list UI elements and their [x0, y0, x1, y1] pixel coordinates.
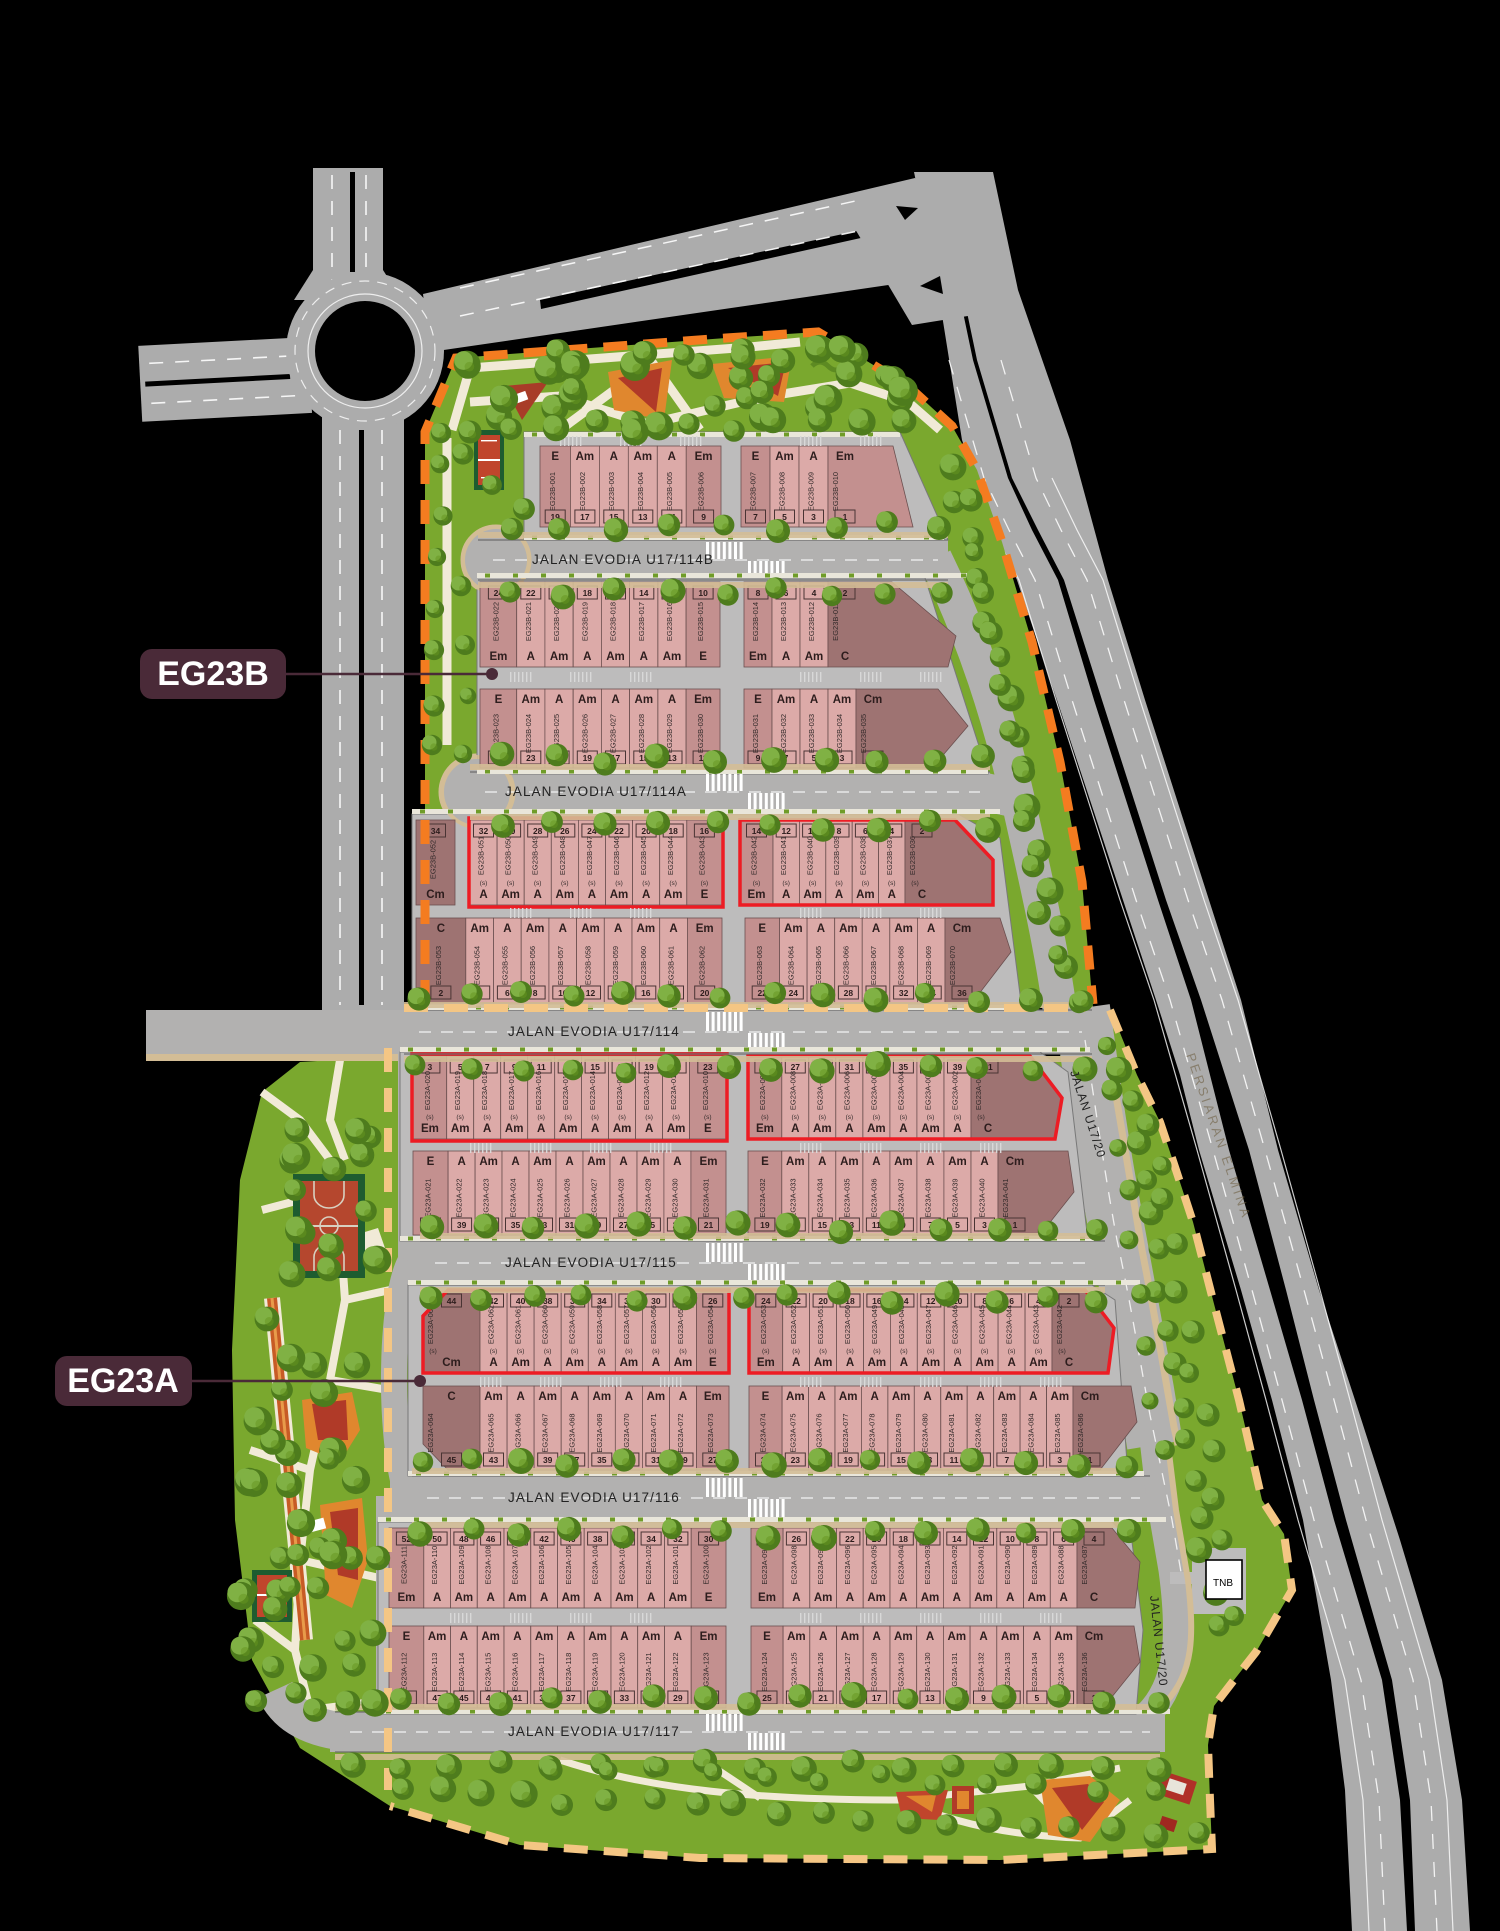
- svg-text:(s): (s): [480, 880, 488, 887]
- svg-text:(s): (s): [761, 1114, 769, 1121]
- svg-text:Em: Em: [757, 1357, 775, 1369]
- svg-text:EG23A-085: EG23A-085: [1053, 1413, 1062, 1452]
- svg-text:EG23A-101: EG23A-101: [671, 1545, 680, 1584]
- svg-text:EG23A-051: EG23A-051: [816, 1305, 825, 1344]
- svg-text:Am: Am: [501, 889, 520, 901]
- svg-text:A: A: [870, 1391, 878, 1403]
- svg-text:31: 31: [845, 1062, 855, 1072]
- svg-text:A: A: [792, 1357, 800, 1369]
- svg-text:EG23A-004: EG23A-004: [896, 1071, 905, 1110]
- svg-text:Am: Am: [642, 1631, 661, 1643]
- svg-text:40: 40: [516, 1296, 526, 1306]
- svg-text:EG23B-031: EG23B-031: [751, 714, 760, 753]
- svg-text:16: 16: [641, 988, 651, 998]
- svg-text:C: C: [1065, 1357, 1073, 1369]
- svg-text:EG23A-012: EG23A-012: [642, 1071, 651, 1110]
- svg-text:EG23A-076: EG23A-076: [815, 1413, 824, 1452]
- svg-text:(s): (s): [792, 1348, 800, 1355]
- svg-text:(s): (s): [618, 1114, 626, 1121]
- svg-text:A: A: [782, 889, 790, 901]
- svg-text:Am: Am: [470, 923, 489, 935]
- svg-text:Am: Am: [839, 923, 858, 935]
- svg-text:EG23A-046: EG23A-046: [951, 1305, 960, 1344]
- svg-text:Am: Am: [581, 923, 600, 935]
- svg-text:Am: Am: [839, 1391, 858, 1403]
- svg-text:A: A: [818, 1156, 826, 1168]
- svg-text:A: A: [900, 1357, 908, 1369]
- svg-text:A: A: [534, 889, 542, 901]
- svg-text:A: A: [540, 1592, 548, 1604]
- svg-text:A: A: [614, 923, 622, 935]
- svg-text:A: A: [899, 1592, 907, 1604]
- svg-text:EG23A-017: EG23A-017: [507, 1071, 516, 1110]
- svg-text:42: 42: [539, 1534, 549, 1544]
- svg-text:JALAN EVODIA U17/115: JALAN EVODIA U17/115: [505, 1255, 677, 1270]
- svg-text:EG23A-050: EG23A-050: [843, 1305, 852, 1344]
- svg-text:EG23A-066: EG23A-066: [514, 1413, 523, 1452]
- svg-text:(s): (s): [762, 1348, 770, 1355]
- svg-text:EG23A-065: EG23A-065: [487, 1413, 496, 1452]
- svg-text:Am: Am: [1054, 1631, 1073, 1643]
- svg-text:A: A: [782, 651, 790, 663]
- svg-text:C: C: [984, 1123, 992, 1135]
- svg-text:(s): (s): [1008, 1348, 1016, 1355]
- svg-text:EG23B-055: EG23B-055: [500, 946, 509, 985]
- svg-text:5: 5: [955, 1220, 960, 1230]
- svg-text:EG23A-103: EG23A-103: [617, 1545, 626, 1584]
- svg-text:(s): (s): [591, 1114, 599, 1121]
- svg-text:Am: Am: [1051, 1391, 1070, 1403]
- svg-text:EG23A-112: EG23A-112: [399, 1653, 408, 1692]
- svg-text:20: 20: [700, 988, 710, 998]
- svg-text:Am: Am: [669, 1592, 688, 1604]
- svg-text:11: 11: [537, 1062, 546, 1072]
- svg-text:EG23A-039: EG23A-039: [951, 1178, 960, 1217]
- svg-text:EG23A-118: EG23A-118: [564, 1653, 573, 1692]
- svg-text:EG23A-102: EG23A-102: [644, 1545, 653, 1584]
- svg-text:24: 24: [761, 1296, 771, 1306]
- svg-text:Cm: Cm: [1085, 1631, 1104, 1643]
- svg-text:A: A: [555, 694, 563, 706]
- svg-text:EG23B-032: EG23B-032: [779, 714, 788, 753]
- svg-text:EG23A-087: EG23A-087: [1080, 1545, 1089, 1584]
- svg-text:EG23A-088: EG23A-088: [1057, 1545, 1066, 1584]
- svg-text:35: 35: [899, 1062, 909, 1072]
- svg-text:A: A: [1059, 1592, 1067, 1604]
- svg-text:E: E: [403, 1631, 411, 1643]
- svg-text:E: E: [495, 694, 503, 706]
- svg-text:Am: Am: [803, 889, 822, 901]
- svg-text:EG23B-061: EG23B-061: [667, 946, 676, 985]
- svg-text:A: A: [460, 1631, 468, 1643]
- svg-text:Am: Am: [922, 1357, 941, 1369]
- svg-text:EG23A-128: EG23A-128: [870, 1652, 879, 1691]
- svg-text:2: 2: [843, 588, 848, 598]
- svg-text:A: A: [645, 1123, 653, 1135]
- svg-text:Am: Am: [814, 1592, 833, 1604]
- svg-text:Am: Am: [613, 1123, 632, 1135]
- svg-text:A: A: [544, 1357, 552, 1369]
- svg-text:(s): (s): [544, 1348, 552, 1355]
- svg-text:Am: Am: [663, 651, 682, 663]
- svg-text:Em: Em: [758, 1592, 776, 1604]
- svg-text:EG23A-122: EG23A-122: [671, 1652, 680, 1691]
- svg-text:EG23A-057: EG23A-057: [622, 1305, 631, 1344]
- svg-text:1: 1: [1013, 1220, 1018, 1230]
- svg-text:Am: Am: [559, 1123, 578, 1135]
- svg-text:EG23A-047: EG23A-047: [924, 1305, 933, 1344]
- svg-text:EG23B-005: EG23B-005: [665, 472, 674, 511]
- svg-text:EG23A-036: EG23A-036: [869, 1178, 878, 1217]
- svg-text:EG23B-070: EG23B-070: [948, 946, 957, 985]
- svg-text:34: 34: [431, 826, 441, 836]
- svg-text:Am: Am: [606, 651, 625, 663]
- svg-text:A: A: [953, 1592, 961, 1604]
- svg-text:2: 2: [1067, 1296, 1072, 1306]
- svg-text:EG23A-134: EG23A-134: [1030, 1652, 1039, 1691]
- svg-text:EG23B-034: EG23B-034: [835, 714, 844, 753]
- svg-text:A: A: [619, 1156, 627, 1168]
- svg-text:(s): (s): [537, 1114, 545, 1121]
- svg-text:Em: Em: [836, 451, 854, 463]
- svg-text:Am: Am: [556, 889, 575, 901]
- svg-text:8: 8: [837, 826, 842, 836]
- svg-text:E: E: [758, 923, 766, 935]
- svg-text:Em: Em: [748, 889, 766, 901]
- svg-text:EG23A-073: EG23A-073: [706, 1413, 715, 1452]
- svg-text:3: 3: [1057, 1455, 1062, 1465]
- svg-text:21: 21: [818, 1693, 828, 1703]
- svg-text:EG23B-064: EG23B-064: [786, 946, 795, 985]
- svg-text:JALAN EVODIA U17/114: JALAN EVODIA U17/114: [508, 1024, 680, 1039]
- svg-text:EG23B-036: EG23B-036: [908, 836, 917, 875]
- svg-text:Am: Am: [588, 1631, 607, 1643]
- svg-text:EG23B-019: EG23B-019: [580, 602, 589, 641]
- svg-text:A: A: [668, 694, 676, 706]
- svg-text:(s): (s): [954, 1348, 962, 1355]
- svg-text:3: 3: [982, 1220, 987, 1230]
- svg-text:EG23A-010: EG23A-010: [701, 1071, 710, 1110]
- svg-text:Am: Am: [533, 1156, 552, 1168]
- svg-text:38: 38: [593, 1534, 603, 1544]
- svg-text:(s): (s): [561, 880, 569, 887]
- svg-text:EG23A-092: EG23A-092: [950, 1545, 959, 1584]
- svg-text:Am: Am: [674, 1357, 693, 1369]
- svg-text:EG23B-060: EG23B-060: [639, 946, 648, 985]
- svg-text:18: 18: [899, 1534, 909, 1544]
- svg-text:EG23A-002: EG23A-002: [951, 1071, 960, 1110]
- svg-text:EG23A-093: EG23A-093: [923, 1545, 932, 1584]
- svg-text:EG23B-065: EG23B-065: [814, 946, 823, 985]
- svg-text:EG23A-131: EG23A-131: [950, 1652, 959, 1691]
- svg-text:EG23A-095: EG23A-095: [870, 1545, 879, 1584]
- svg-text:A: A: [668, 451, 676, 463]
- svg-text:Am: Am: [948, 1631, 967, 1643]
- svg-text:A: A: [620, 1631, 628, 1643]
- svg-text:E: E: [754, 694, 762, 706]
- svg-text:E: E: [709, 1357, 717, 1369]
- svg-text:Am: Am: [856, 889, 875, 901]
- svg-text:Cm: Cm: [864, 694, 883, 706]
- svg-text:44: 44: [447, 1296, 457, 1306]
- svg-text:EG23A-126: EG23A-126: [816, 1652, 825, 1691]
- svg-text:EG23A-120: EG23A-120: [617, 1652, 626, 1691]
- svg-text:EG23B-040: EG23B-040: [806, 836, 815, 875]
- svg-text:(s): (s): [753, 880, 761, 887]
- svg-text:33: 33: [620, 1693, 630, 1703]
- svg-text:EG23B-024: EG23B-024: [524, 714, 533, 753]
- svg-text:EG23A-054: EG23A-054: [706, 1305, 715, 1344]
- svg-text:(s): (s): [846, 1114, 854, 1121]
- svg-text:E: E: [699, 651, 707, 663]
- svg-text:Em: Em: [694, 694, 712, 706]
- svg-text:EG23A-099: EG23A-099: [760, 1545, 769, 1584]
- svg-text:EG23A-024: EG23A-024: [509, 1178, 518, 1217]
- svg-text:EG23B-017: EG23B-017: [637, 602, 646, 641]
- svg-text:EG23A-136: EG23A-136: [1080, 1652, 1089, 1691]
- svg-text:C: C: [918, 889, 926, 901]
- svg-text:EG23B-051: EG23B-051: [477, 836, 486, 875]
- svg-text:(s): (s): [672, 1114, 680, 1121]
- svg-text:Am: Am: [786, 1391, 805, 1403]
- svg-text:45: 45: [447, 1455, 457, 1465]
- svg-text:Em: Em: [756, 1123, 774, 1135]
- svg-text:EG23A-025: EG23A-025: [536, 1178, 545, 1217]
- svg-text:EG23A-069: EG23A-069: [595, 1413, 604, 1452]
- svg-text:Am: Am: [814, 1357, 833, 1369]
- svg-text:EG23B-028: EG23B-028: [637, 714, 646, 753]
- svg-text:A: A: [846, 1592, 854, 1604]
- svg-text:EG23B-038: EG23B-038: [858, 836, 867, 875]
- svg-text:EG23A-094: EG23A-094: [896, 1545, 905, 1584]
- svg-text:Am: Am: [505, 1123, 524, 1135]
- svg-text:EG23A-075: EG23A-075: [788, 1413, 797, 1452]
- svg-text:EG23A-074: EG23A-074: [759, 1413, 768, 1452]
- svg-text:A: A: [513, 1631, 521, 1643]
- svg-text:A: A: [846, 1357, 854, 1369]
- svg-text:EG23B-022: EG23B-022: [491, 602, 500, 641]
- svg-text:A: A: [598, 1357, 606, 1369]
- svg-text:EG23A-016: EG23A-016: [534, 1071, 543, 1110]
- svg-text:EG23B-039: EG23B-039: [832, 836, 841, 875]
- svg-text:Em: Em: [704, 1391, 722, 1403]
- svg-text:EG23A-072: EG23A-072: [676, 1413, 685, 1452]
- svg-text:EG23A-055: EG23A-055: [676, 1305, 685, 1344]
- svg-text:35: 35: [597, 1455, 607, 1465]
- svg-text:(s): (s): [981, 1348, 989, 1355]
- svg-text:(s): (s): [571, 1348, 579, 1355]
- svg-text:A: A: [810, 694, 818, 706]
- svg-text:EG23A-032: EG23A-032: [758, 1178, 767, 1217]
- svg-text:39: 39: [953, 1062, 963, 1072]
- svg-text:EG23B-063: EG23B-063: [755, 946, 764, 985]
- svg-text:Am: Am: [587, 1156, 606, 1168]
- svg-text:A: A: [642, 889, 650, 901]
- svg-text:A: A: [899, 1123, 907, 1135]
- svg-text:Am: Am: [805, 651, 824, 663]
- svg-text:EG23A-022: EG23A-022: [455, 1178, 464, 1217]
- svg-text:EG23B-013: EG23B-013: [779, 602, 788, 641]
- svg-text:7: 7: [485, 1062, 490, 1072]
- svg-text:EG23A-109: EG23A-109: [457, 1545, 466, 1584]
- svg-text:EG23A-078: EG23A-078: [868, 1413, 877, 1452]
- svg-text:17: 17: [872, 1693, 882, 1703]
- svg-text:A: A: [1033, 1631, 1041, 1643]
- svg-text:A: A: [433, 1592, 441, 1604]
- svg-text:EG23A-030: EG23A-030: [670, 1178, 679, 1217]
- svg-text:EG23A-083: EG23A-083: [1000, 1413, 1009, 1452]
- svg-text:14: 14: [639, 588, 649, 598]
- svg-text:EG23B-002: EG23B-002: [578, 472, 587, 511]
- svg-text:Am: Am: [841, 1631, 860, 1643]
- svg-text:EG23A-031: EG23A-031: [702, 1178, 711, 1217]
- svg-text:EG23B-007: EG23B-007: [749, 472, 758, 511]
- svg-text:Am: Am: [784, 923, 803, 935]
- svg-text:Am: Am: [479, 1156, 498, 1168]
- svg-text:A: A: [872, 1631, 880, 1643]
- svg-text:EG23B-033: EG23B-033: [807, 714, 816, 753]
- svg-text:A: A: [611, 694, 619, 706]
- svg-text:(s): (s): [615, 880, 623, 887]
- svg-text:Am: Am: [538, 1391, 557, 1403]
- svg-text:(s): (s): [429, 1348, 437, 1355]
- svg-text:A: A: [588, 889, 596, 901]
- svg-text:(s): (s): [809, 880, 817, 887]
- svg-text:EG23B-015: EG23B-015: [696, 602, 705, 641]
- svg-text:EG23A-060: EG23A-060: [541, 1305, 550, 1344]
- svg-text:EG23A-113: EG23A-113: [430, 1653, 439, 1692]
- svg-text:10: 10: [698, 588, 708, 598]
- svg-text:EG23A-061: EG23A-061: [514, 1305, 523, 1344]
- svg-text:EG23A-108: EG23A-108: [484, 1545, 493, 1584]
- svg-text:(s): (s): [1035, 1348, 1043, 1355]
- svg-text:Am: Am: [562, 1592, 581, 1604]
- svg-text:EG23A-077: EG23A-077: [841, 1413, 850, 1452]
- svg-text:(s): (s): [669, 880, 677, 887]
- svg-text:A: A: [979, 1631, 987, 1643]
- svg-text:Am: Am: [892, 1391, 911, 1403]
- svg-text:A: A: [923, 1391, 931, 1403]
- svg-text:A: A: [593, 1592, 601, 1604]
- svg-text:Am: Am: [428, 1631, 447, 1643]
- svg-text:EG23A-058: EG23A-058: [595, 1305, 604, 1344]
- svg-text:EG23A-040: EG23A-040: [978, 1178, 987, 1217]
- svg-text:E: E: [752, 451, 760, 463]
- svg-text:EG23B-053: EG23B-053: [434, 946, 443, 985]
- svg-text:EG23B-008: EG23B-008: [778, 472, 787, 511]
- svg-text:EG23B-011: EG23B-011: [831, 602, 840, 641]
- svg-text:Am: Am: [998, 1391, 1017, 1403]
- svg-text:Cm: Cm: [1081, 1391, 1100, 1403]
- svg-text:A: A: [872, 1156, 880, 1168]
- svg-text:EG23B-062: EG23B-062: [698, 946, 707, 985]
- svg-text:EG23B-037: EG23B-037: [885, 836, 894, 875]
- svg-text:EG23A-097: EG23A-097: [816, 1545, 825, 1584]
- svg-text:Em: Em: [700, 1631, 718, 1643]
- svg-text:A: A: [926, 1156, 934, 1168]
- svg-text:EG23A-014: EG23A-014: [588, 1071, 597, 1110]
- svg-text:15: 15: [896, 1455, 906, 1465]
- svg-text:C: C: [447, 1391, 455, 1403]
- svg-text:EG23A-090: EG23A-090: [1003, 1545, 1012, 1584]
- svg-text:EG23A-027: EG23A-027: [590, 1178, 599, 1217]
- svg-text:JALAN EVODIA U17/116: JALAN EVODIA U17/116: [508, 1490, 680, 1505]
- svg-text:Am: Am: [451, 1123, 470, 1135]
- svg-text:(s): (s): [652, 1348, 660, 1355]
- svg-text:EG23B-068: EG23B-068: [897, 946, 906, 985]
- svg-text:EG23A-070: EG23A-070: [622, 1413, 631, 1452]
- svg-text:EG23A-067: EG23A-067: [541, 1413, 550, 1452]
- svg-text:19: 19: [760, 1220, 770, 1230]
- svg-text:EG23B-059: EG23B-059: [611, 946, 620, 985]
- svg-text:A: A: [511, 1156, 519, 1168]
- svg-text:(s): (s): [679, 1348, 687, 1355]
- svg-text:Cm: Cm: [1006, 1156, 1025, 1168]
- svg-text:EG23A-023: EG23A-023: [482, 1178, 491, 1217]
- svg-text:Am: Am: [664, 889, 683, 901]
- svg-text:A: A: [872, 923, 880, 935]
- svg-text:Cm: Cm: [953, 923, 972, 935]
- svg-text:EG23B-042: EG23B-042: [750, 836, 759, 875]
- svg-text:17: 17: [580, 512, 590, 522]
- svg-text:Am: Am: [522, 694, 541, 706]
- svg-text:(s): (s): [701, 880, 709, 887]
- svg-text:EG23B-026: EG23B-026: [580, 714, 589, 753]
- svg-text:EG23A-021: EG23A-021: [424, 1178, 433, 1217]
- svg-text:EG23B-021: EG23B-021: [524, 602, 533, 641]
- svg-text:A: A: [669, 923, 677, 935]
- svg-text:EG23B-048: EG23B-048: [558, 836, 567, 875]
- svg-text:Am: Am: [945, 1391, 964, 1403]
- svg-text:EG23A-116: EG23A-116: [510, 1653, 519, 1692]
- svg-text:C: C: [841, 651, 849, 663]
- svg-text:12: 12: [926, 1296, 936, 1306]
- svg-text:EG23B-067: EG23B-067: [869, 946, 878, 985]
- svg-text:(s): (s): [782, 880, 790, 887]
- svg-text:Am: Am: [576, 451, 595, 463]
- svg-text:JALAN EVODIA U17/114A: JALAN EVODIA U17/114A: [505, 784, 687, 799]
- svg-text:Am: Am: [647, 1391, 666, 1403]
- svg-text:EG23A-042: EG23A-042: [1055, 1305, 1064, 1344]
- svg-text:A: A: [652, 1357, 660, 1369]
- svg-text:A: A: [809, 451, 817, 463]
- svg-text:32: 32: [479, 826, 489, 836]
- svg-text:50: 50: [432, 1534, 442, 1544]
- svg-text:E: E: [761, 1156, 769, 1168]
- svg-text:EG23A-080: EG23A-080: [921, 1413, 930, 1452]
- svg-text:8: 8: [756, 588, 761, 598]
- svg-text:5: 5: [1035, 1693, 1040, 1703]
- svg-text:(s): (s): [645, 1114, 653, 1121]
- svg-text:(s): (s): [819, 1114, 827, 1121]
- svg-text:JALAN EVODIA U17/114B: JALAN EVODIA U17/114B: [532, 552, 714, 567]
- svg-text:EG23B-001: EG23B-001: [548, 472, 557, 511]
- svg-text:12: 12: [781, 826, 791, 836]
- svg-text:23: 23: [703, 1062, 713, 1072]
- svg-text:EG23B-035: EG23B-035: [859, 714, 868, 753]
- svg-text:A: A: [835, 889, 843, 901]
- svg-text:EG23A-008: EG23A-008: [788, 1071, 797, 1110]
- svg-text:Am: Am: [894, 1631, 913, 1643]
- svg-text:9: 9: [756, 753, 761, 763]
- svg-text:EG23A-081: EG23A-081: [947, 1413, 956, 1452]
- svg-text:9: 9: [701, 512, 706, 522]
- svg-text:EG23A-029: EG23A-029: [643, 1178, 652, 1217]
- svg-text:Em: Em: [489, 651, 507, 663]
- svg-text:EG23A-104: EG23A-104: [591, 1545, 600, 1584]
- svg-text:EG23A-059: EG23A-059: [568, 1305, 577, 1344]
- svg-text:8: 8: [533, 988, 538, 998]
